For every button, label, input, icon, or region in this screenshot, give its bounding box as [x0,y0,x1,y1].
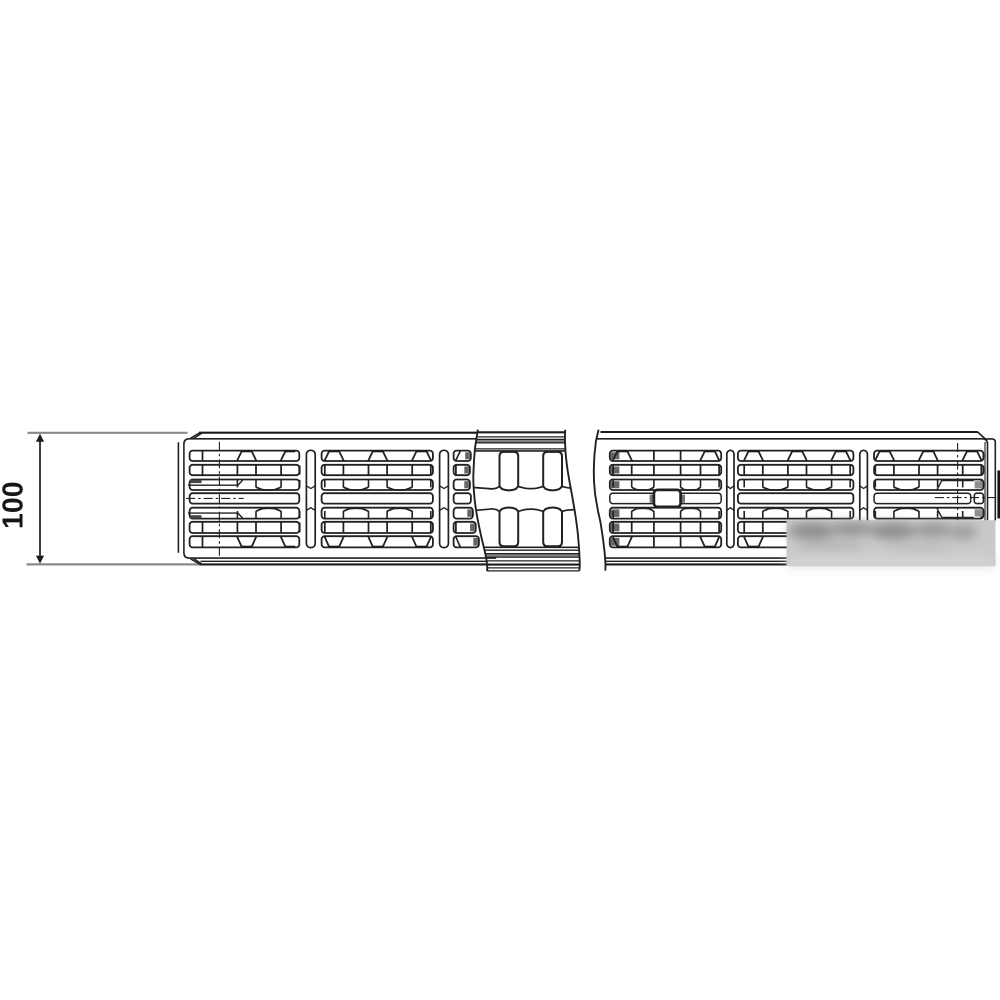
svg-text:100: 100 [0,481,29,529]
